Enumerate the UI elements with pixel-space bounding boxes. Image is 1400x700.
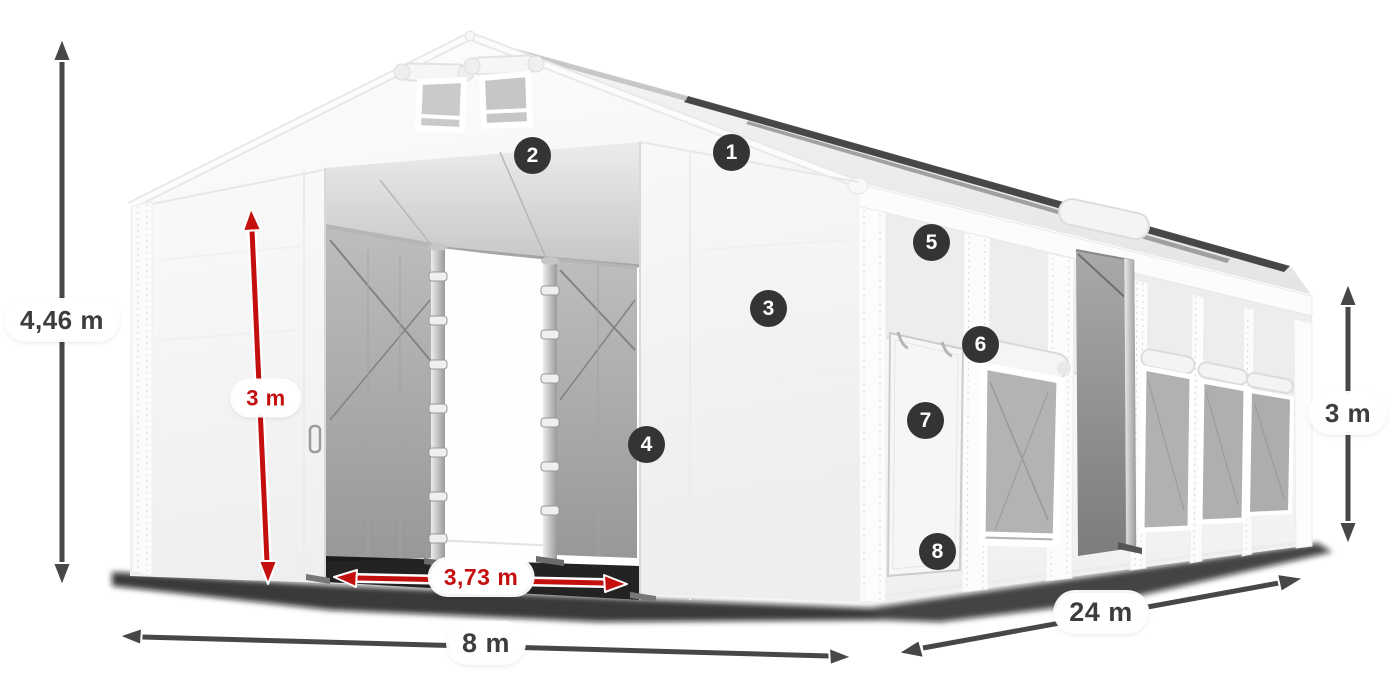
- callout-badge-4: 4: [628, 426, 665, 463]
- callout-badge-8: 8: [919, 533, 956, 570]
- dimension-label-front-width: 8 m: [449, 624, 523, 662]
- dimension-label-entrance-height: 3 m: [233, 382, 298, 415]
- doorway-pole: [1124, 258, 1136, 546]
- tent-dimension-diagram: 4,46 m 3 m 3,73 m 8 m 24 m 3 m 1 2 3 4 5…: [0, 0, 1400, 700]
- dimension-label-length: 24 m: [1056, 593, 1146, 631]
- side-mesh-window: [975, 344, 1071, 544]
- entrance-opening: [304, 142, 690, 602]
- gable-corner-strap: [132, 202, 152, 576]
- callout-badge-6: 6: [962, 326, 999, 363]
- tent-illustration: [0, 0, 1400, 700]
- callout-badge-1: 1: [713, 134, 750, 171]
- callout-badge-7: 7: [907, 402, 944, 439]
- dimension-label-entrance-width: 3,73 m: [431, 560, 532, 594]
- callout-badge-5: 5: [913, 224, 950, 261]
- callout-badge-2: 2: [514, 137, 551, 174]
- side-doorway: [1072, 212, 1142, 556]
- side-windows: [1142, 358, 1292, 530]
- dimension-label-side-height: 3 m: [1312, 394, 1384, 432]
- callout-badge-3: 3: [750, 290, 787, 327]
- dimension-label-total-height: 4,46 m: [7, 301, 117, 339]
